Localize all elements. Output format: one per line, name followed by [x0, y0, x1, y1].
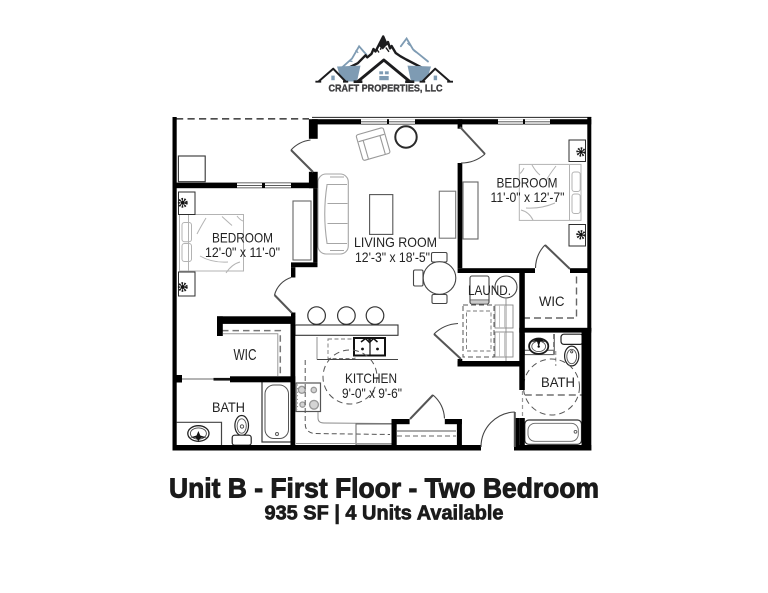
svg-text:WIC: WIC — [539, 293, 565, 309]
svg-text:9'-0" x 9'-6": 9'-0" x 9'-6" — [342, 385, 402, 401]
svg-text:LAUND.: LAUND. — [468, 282, 511, 298]
svg-text:KITCHEN: KITCHEN — [345, 370, 397, 386]
svg-text:BATH: BATH — [212, 399, 245, 415]
svg-text:Unit B - First Floor - Two Bed: Unit B - First Floor - Two Bedroom — [169, 473, 599, 504]
svg-text:WIC: WIC — [234, 347, 257, 364]
svg-text:11'-0" x 12'-7": 11'-0" x 12'-7" — [491, 189, 565, 205]
svg-text:12'-0" x 11'-0": 12'-0" x 11'-0" — [205, 244, 280, 260]
svg-text:BATH: BATH — [541, 374, 575, 390]
svg-text:BEDROOM: BEDROOM — [212, 229, 273, 245]
svg-text:LIVING ROOM: LIVING ROOM — [354, 234, 437, 250]
svg-text:935 SF | 4 Units Available: 935 SF | 4 Units Available — [265, 503, 504, 525]
svg-text:12'-3" x 18'-5": 12'-3" x 18'-5" — [355, 249, 430, 265]
svg-text:CRAFT PROPERTIES, LLC: CRAFT PROPERTIES, LLC — [329, 84, 443, 95]
